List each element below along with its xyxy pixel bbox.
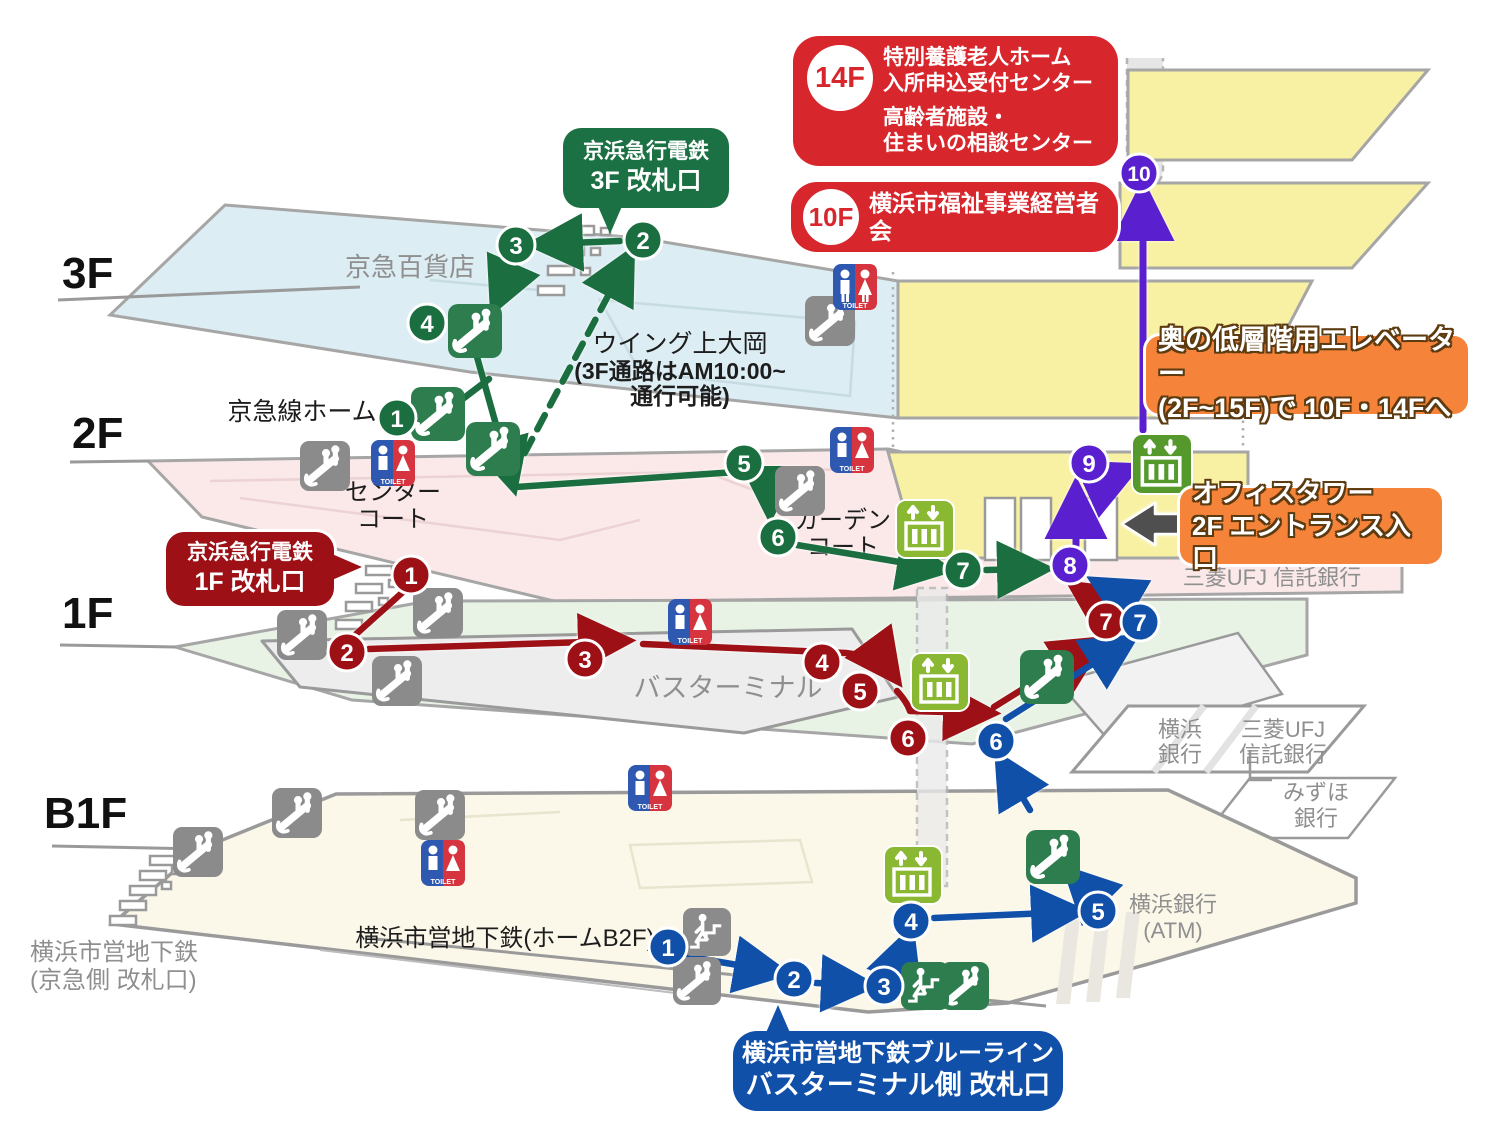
toilet-icon: TOILET <box>371 440 415 486</box>
svg-text:5: 5 <box>737 451 750 478</box>
stop-blue-1: 1 <box>649 928 687 966</box>
svg-text:2: 2 <box>636 228 649 255</box>
stop-purple-8: 8 <box>1051 546 1089 584</box>
floor-badge-10f: 10F <box>803 189 859 245</box>
floor-label-2f: 2F <box>72 409 123 458</box>
door <box>985 498 1015 560</box>
svg-text:6: 6 <box>989 729 1002 756</box>
station-access-map: 3F 2F 1F B1F 京急百貨店 ウイング上大岡 (3F通路はAM10:00… <box>0 0 1500 1125</box>
door <box>1085 498 1117 560</box>
bubble-tail <box>597 204 623 234</box>
label-keikyu-dept: 京急百貨店 <box>345 252 475 282</box>
tower-floors <box>1120 58 1428 268</box>
bubble-keikyu-3f-gate: 京浜急行電鉄 3F 改札口 <box>563 128 729 208</box>
banner-10f-text: 横浜市福祉事業経営者会 <box>869 189 1106 245</box>
bubble-3f-line2: 3F 改札口 <box>563 166 729 197</box>
stop-red-7: 7 <box>1087 602 1125 640</box>
bubble-1f-line1: 京浜急行電鉄 <box>166 540 334 566</box>
toilet-icon: TOILET <box>421 840 465 886</box>
svg-text:3: 3 <box>578 647 591 674</box>
stairs-icon <box>683 908 731 956</box>
escalator-icon <box>1026 830 1080 884</box>
floor-label-1f: 1F <box>62 589 113 638</box>
banner-10f-business-assoc: 10F 横浜市福祉事業経営者会 <box>791 182 1118 252</box>
office-entrance-line2: 2F エントランス入口 <box>1192 510 1430 575</box>
stop-blue-2: 2 <box>775 960 813 998</box>
stop-purple-9: 9 <box>1070 444 1108 482</box>
svg-text:TOILET: TOILET <box>840 466 865 473</box>
stop-red-4: 4 <box>803 643 841 681</box>
escalator-icon <box>413 588 463 638</box>
label-mufg-1f-2: 信託銀行 <box>1239 742 1327 767</box>
banner-14f-text: 特別養護老人ホーム 入所申込受付センター 高齢者施設・ 住まいの相談センター <box>883 45 1093 156</box>
banner-14f-line4: 住まいの相談センター <box>883 132 1093 155</box>
label-yokohama-bank-2: 銀行 <box>1158 742 1202 767</box>
label-yokohama-atm-2: (ATM) <box>1143 918 1202 943</box>
bubble-3f-line1: 京浜急行電鉄 <box>563 139 729 165</box>
stairs-icon <box>901 962 949 1010</box>
svg-text:9: 9 <box>1082 451 1095 478</box>
svg-text:1: 1 <box>661 935 674 962</box>
label-subway-keikyu-2: (京急側 改札口) <box>30 967 197 994</box>
bubble-keikyu-1f-gate: 京浜急行電鉄 1F 改札口 <box>166 532 334 606</box>
banner-14f-line3: 高齢者施設・ <box>883 106 1009 129</box>
elevator-note-line1: 奥の低層階用エレベーター <box>1158 324 1456 392</box>
label-yokohama-bank-1: 横浜 <box>1158 717 1202 742</box>
label-subway-b2f: 横浜市営地下鉄(ホームB2F) <box>355 925 654 952</box>
stop-blue-6: 6 <box>977 722 1015 760</box>
bubble-1f-line2: 1F 改札口 <box>166 567 334 598</box>
elevator-note-line2: (2F~15F)で 10F・14Fへ <box>1158 392 1456 426</box>
elevator-icon <box>910 652 970 712</box>
stop-purple-10: 10 <box>1120 154 1158 192</box>
stop-green-6: 6 <box>759 518 797 556</box>
escalator-icon <box>411 387 465 441</box>
label-wing-2: (3F通路はAM10:00~ <box>574 358 786 384</box>
bubble-tail <box>332 554 362 580</box>
toilet-icon: TOILET <box>628 765 672 811</box>
svg-text:TOILET: TOILET <box>431 879 456 886</box>
svg-text:5: 5 <box>853 679 866 706</box>
label-mizuho-1: みずほ <box>1283 780 1349 805</box>
escalator-icon <box>300 441 350 491</box>
escalator-icon <box>1020 650 1074 704</box>
stop-blue-7: 7 <box>1121 603 1159 641</box>
stop-green-5: 5 <box>725 444 763 482</box>
door <box>1021 498 1051 560</box>
svg-text:7: 7 <box>956 558 969 585</box>
label-subway-keikyu-1: 横浜市営地下鉄 <box>30 939 198 966</box>
svg-text:TOILET: TOILET <box>638 804 663 811</box>
bubble-subway-line1: 横浜市営地下鉄ブルーライン <box>733 1039 1063 1069</box>
stop-blue-3: 3 <box>865 967 903 1005</box>
bubble-tail <box>765 1005 791 1035</box>
stop-red-1: 1 <box>392 556 430 594</box>
escalator-icon <box>173 827 223 877</box>
label-center-court-2: コート <box>357 506 429 533</box>
label-yokohama-atm-1: 横浜銀行 <box>1129 892 1217 917</box>
svg-text:4: 4 <box>420 311 434 338</box>
svg-text:2: 2 <box>787 967 800 994</box>
svg-text:2: 2 <box>340 640 353 667</box>
banner-14f-line1: 特別養護老人ホーム <box>883 46 1071 69</box>
stop-red-6: 6 <box>889 719 927 757</box>
label-bus-terminal: バスターミナル <box>634 673 823 703</box>
stop-green-4: 4 <box>408 304 446 342</box>
stop-green-3: 3 <box>497 226 535 264</box>
svg-text:7: 7 <box>1099 609 1112 636</box>
floor-label-b1f: B1F <box>44 789 127 838</box>
svg-text:10: 10 <box>1127 163 1150 186</box>
escalator-icon <box>415 790 465 840</box>
stop-red-3: 3 <box>566 640 604 678</box>
elevator-icon <box>1131 433 1193 495</box>
escalator-icon <box>673 957 721 1005</box>
svg-text:TOILET: TOILET <box>678 638 703 645</box>
escalator-icon <box>372 656 422 706</box>
svg-text:6: 6 <box>771 525 784 552</box>
bubble-subway-line2: バスターミナル側 改札口 <box>733 1069 1063 1103</box>
stop-green-2: 2 <box>624 221 662 259</box>
floor-14f-slab <box>1128 70 1428 160</box>
office-entrance-line1: オフィスタワー <box>1192 477 1430 510</box>
svg-text:TOILET: TOILET <box>843 303 868 310</box>
banner-14f-line2: 入所申込受付センター <box>883 72 1093 95</box>
svg-text:3: 3 <box>877 974 890 1001</box>
label-mizuho-2: 銀行 <box>1294 806 1338 831</box>
banner-elevator-note: 奥の低層階用エレベーター (2F~15F)で 10F・14Fへ <box>1146 336 1468 414</box>
stop-red-2: 2 <box>328 633 366 671</box>
escalator-icon <box>272 788 322 838</box>
toilet-icon: TOILET <box>833 264 877 310</box>
elevator-icon <box>895 499 955 559</box>
svg-text:4: 4 <box>815 650 829 677</box>
floor-label-3f: 3F <box>62 249 113 298</box>
escalator-icon <box>775 466 825 516</box>
bubble-subway-gate: 横浜市営地下鉄ブルーライン バスターミナル側 改札口 <box>733 1031 1063 1111</box>
escalator-icon <box>466 422 520 476</box>
stop-blue-5: 5 <box>1079 892 1117 930</box>
svg-text:1: 1 <box>390 406 403 433</box>
elevator-icon <box>883 845 943 905</box>
stop-green-7: 7 <box>944 551 982 589</box>
svg-text:6: 6 <box>901 726 914 753</box>
svg-text:4: 4 <box>904 909 918 936</box>
banner-office-entrance: オフィスタワー 2F エントランス入口 <box>1180 488 1442 564</box>
svg-text:8: 8 <box>1063 553 1076 580</box>
label-wing-1: ウイング上大岡 <box>592 330 767 358</box>
toilet-icon: TOILET <box>668 599 712 645</box>
svg-text:1: 1 <box>404 563 417 590</box>
banner-14f-care-center: 14F 特別養護老人ホーム 入所申込受付センター 高齢者施設・ 住まいの相談セン… <box>793 36 1118 166</box>
stop-green-1: 1 <box>378 399 416 437</box>
toilet-icon: TOILET <box>830 427 874 473</box>
escalator-icon <box>277 610 327 660</box>
escalator-icon <box>448 304 502 358</box>
stop-red-5: 5 <box>841 672 879 710</box>
label-keikyu-home: 京急線ホーム <box>227 398 376 426</box>
svg-text:3: 3 <box>509 233 522 260</box>
label-wing-3: 通行可能) <box>630 383 730 409</box>
svg-text:7: 7 <box>1133 610 1146 637</box>
svg-text:TOILET: TOILET <box>381 479 406 486</box>
svg-text:5: 5 <box>1091 899 1104 926</box>
label-mufg-1f-1: 三菱UFJ <box>1241 717 1325 742</box>
floor-badge-14f: 14F <box>807 45 873 111</box>
stop-blue-4: 4 <box>892 902 930 940</box>
floor-10f-slab <box>1120 183 1428 268</box>
